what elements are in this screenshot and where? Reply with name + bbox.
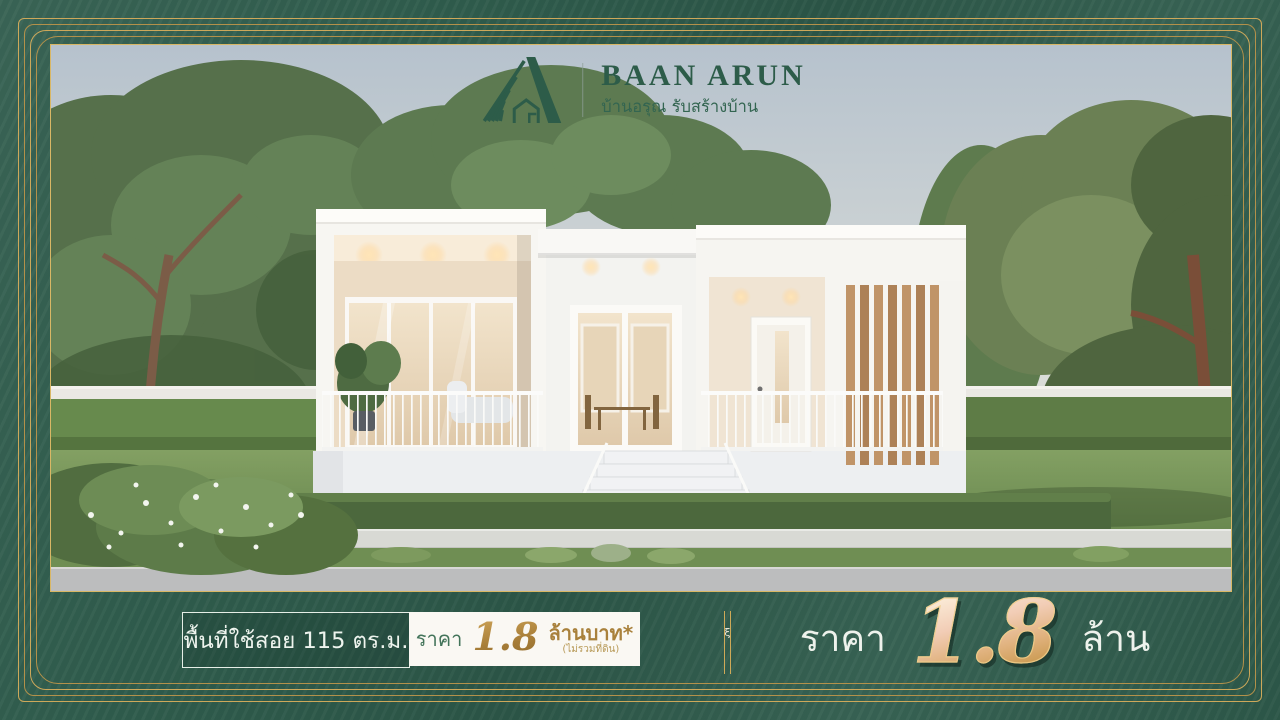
price-box-label: ราคา [416,623,463,655]
house-middle-section [538,229,704,451]
house-photo: BAAN ARUN บ้านอรุณ รับสร้างบ้าน [50,44,1232,592]
brand-lockup: BAAN ARUN บ้านอรุณ รับสร้างบ้าน [476,53,806,127]
poster: BAAN ARUN บ้านอรุณ รับสร้างบ้าน พื้นที่ใ… [0,0,1280,720]
price-box-unit: ล้านบาท* [548,623,633,643]
sunrise-house-logo-icon [476,53,564,127]
banner-price-label: ราคา [800,620,886,657]
price-box-unit-block: ล้านบาท* (ไม่รวมที่ดิน) [548,623,633,655]
brand-text-block: BAAN ARUN บ้านอรุณ รับสร้างบ้าน [601,60,806,121]
front-hedgerow [287,493,1111,533]
house [313,209,966,533]
banner-price-value: 1.8 [912,590,1056,676]
section-divider: ξ [724,611,731,674]
price-box-value: 1.8 [472,618,538,656]
divider-ornament-icon: ξ [724,627,730,638]
logo-divider [582,63,583,117]
price-banner: ราคา 1.8 ล้าน [745,592,1205,684]
brand-tagline: บ้านอรุณ รับสร้างบ้าน [601,94,806,120]
area-box: พื้นที่ใช้สอย 115 ตร.ม. [182,612,410,668]
price-box-note: (ไม่รวมที่ดิน) [562,645,619,655]
area-text: พื้นที่ใช้สอย 115 ตร.ม. [184,622,409,658]
brand-name: BAAN ARUN [601,60,806,92]
door-handle [758,387,763,392]
price-box: ราคา 1.8 ล้านบาท* (ไม่รวมที่ดิน) [409,612,640,666]
banner-price-unit: ล้าน [1082,620,1151,657]
